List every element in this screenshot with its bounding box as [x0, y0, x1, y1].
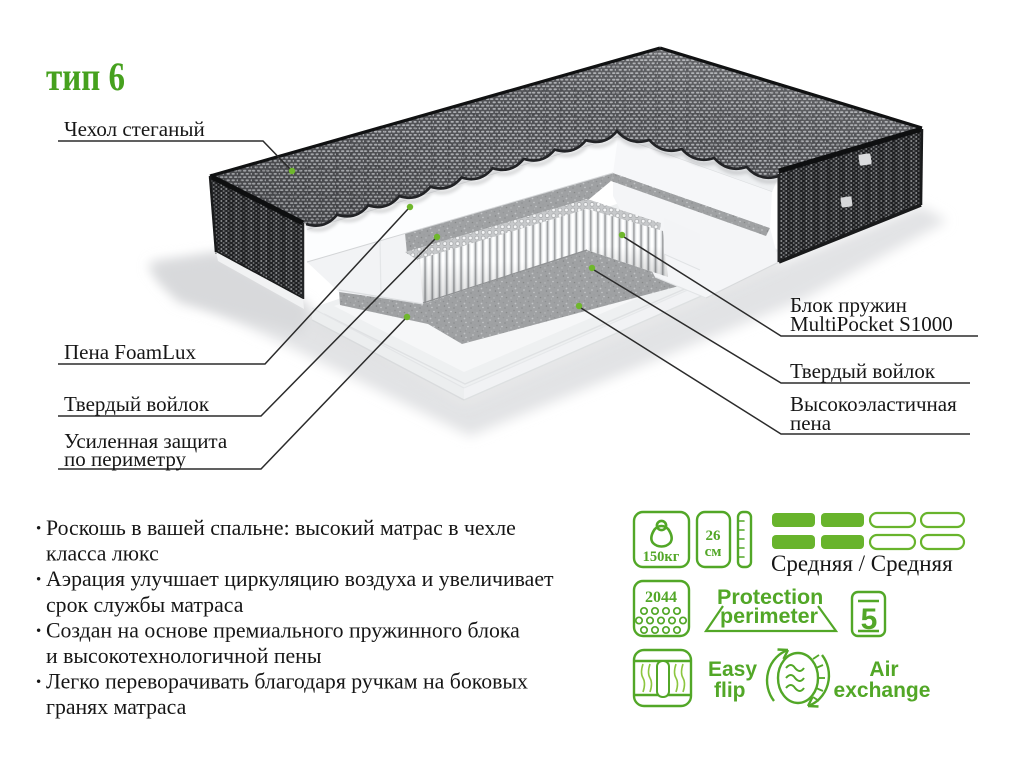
svg-text:flip: flip — [714, 679, 746, 702]
svg-text:•: • — [36, 521, 41, 537]
svg-text:5: 5 — [861, 603, 878, 636]
svg-text:•: • — [36, 623, 41, 639]
svg-text:Создан на основе премиального: Создан на основе премиального пружинного… — [46, 618, 520, 642]
svg-text:exchange: exchange — [834, 679, 931, 702]
svg-text:тип 6: тип 6 — [46, 54, 125, 99]
svg-text:Аэрация улучшает циркуляцию во: Аэрация улучшает циркуляцию воздуха и ув… — [46, 567, 554, 591]
svg-text:•: • — [36, 675, 41, 691]
svg-text:пена: пена — [790, 411, 832, 435]
svg-text:см: см — [705, 544, 722, 560]
svg-text:perimeter: perimeter — [720, 604, 819, 628]
svg-text:и высокотехнологичной пены: и высокотехнологичной пены — [46, 644, 322, 668]
svg-text:срок службы матраса: срок службы матраса — [46, 593, 244, 617]
svg-text:Easy: Easy — [708, 658, 757, 681]
svg-text:Средняя / Средняя: Средняя / Средняя — [771, 551, 953, 576]
svg-text:Air: Air — [869, 658, 898, 681]
svg-text:гранях матраса: гранях матраса — [46, 695, 187, 719]
svg-text:класса люкс: класса люкс — [46, 542, 159, 566]
svg-text:по периметру: по периметру — [64, 447, 187, 471]
svg-text:•: • — [36, 572, 41, 588]
svg-text:2044: 2044 — [645, 589, 677, 606]
svg-text:26: 26 — [706, 528, 722, 544]
svg-text:150кг: 150кг — [643, 549, 680, 565]
svg-text:Чехол стеганый: Чехол стеганый — [64, 117, 205, 141]
svg-text:Легко переворачивать благодаря: Легко переворачивать благодаря ручкам на… — [46, 670, 528, 694]
svg-text:Роскошь в вашей спальне: высок: Роскошь в вашей спальне: высокий матрас … — [46, 516, 516, 540]
svg-text:Пена FoamLux: Пена FoamLux — [64, 340, 196, 364]
svg-text:MultiPocket S1000: MultiPocket S1000 — [790, 312, 953, 336]
svg-text:Твердый войлок: Твердый войлок — [790, 359, 936, 383]
svg-text:Твердый войлок: Твердый войлок — [64, 392, 210, 416]
